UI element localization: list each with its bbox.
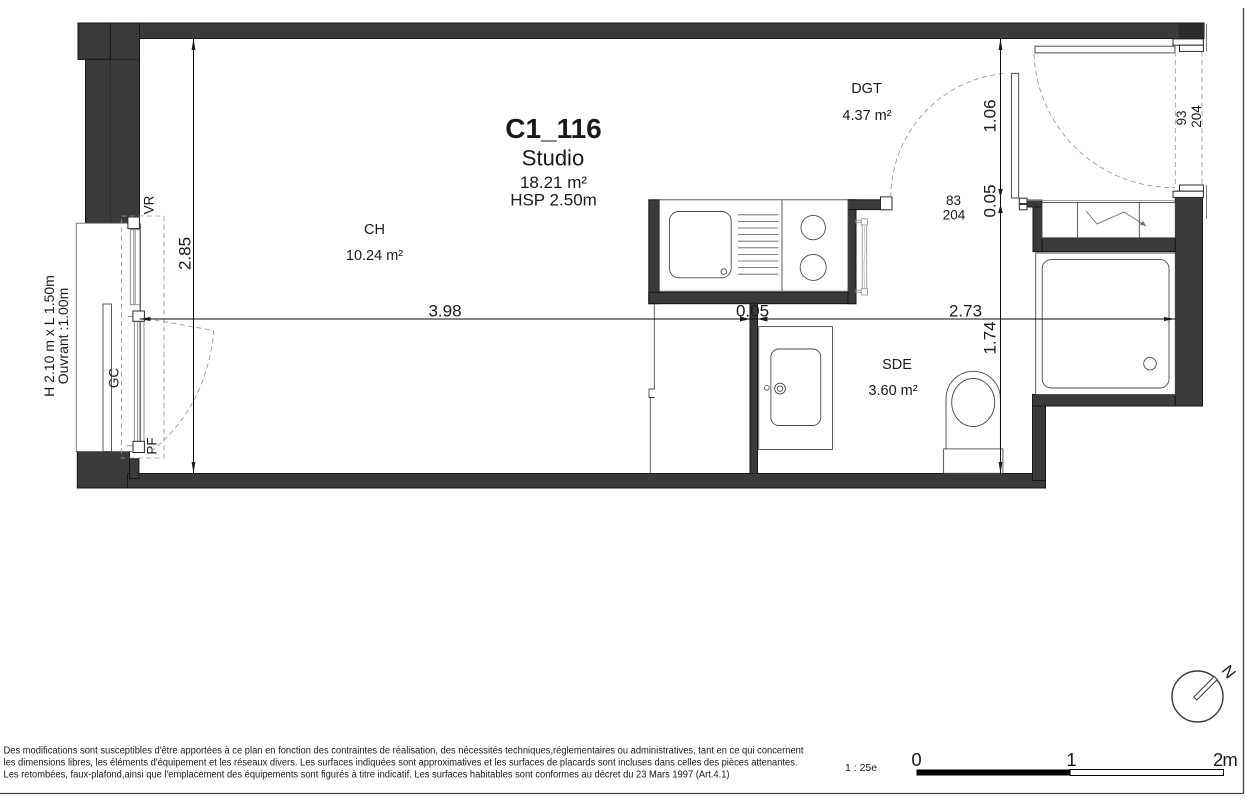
svg-text:Les retombées, faux-plafond,ai: Les retombées, faux-plafond,ainsi que l'… [4, 770, 730, 781]
svg-text:1.06: 1.06 [981, 99, 1000, 132]
svg-text:0.05: 0.05 [981, 184, 1000, 217]
svg-text:GC: GC [107, 368, 122, 389]
svg-text:18.21 m²: 18.21 m² [520, 173, 587, 192]
svg-text:10.24 m²: 10.24 m² [346, 248, 403, 264]
svg-text:Ouvrant :1.00m: Ouvrant :1.00m [55, 288, 71, 385]
svg-text:1 : 25e: 1 : 25e [845, 762, 877, 774]
svg-text:1: 1 [1066, 749, 1076, 770]
svg-text:N: N [1218, 662, 1239, 682]
svg-text:2.73: 2.73 [949, 302, 982, 321]
svg-text:3.60 m²: 3.60 m² [868, 383, 917, 399]
svg-text:2.85: 2.85 [176, 237, 195, 270]
svg-text:les dimensions libres, les élé: les dimensions libres, les éléments d'éq… [4, 758, 798, 769]
svg-text:CH: CH [364, 222, 385, 238]
svg-text:83: 83 [946, 193, 961, 208]
svg-text:DGT: DGT [851, 81, 882, 97]
svg-text:2m: 2m [1213, 749, 1237, 770]
svg-text:93: 93 [1174, 110, 1189, 125]
svg-text:204: 204 [943, 208, 966, 223]
svg-text:Des modifications sont suscept: Des modifications sont susceptibles d'êt… [4, 746, 804, 757]
svg-text:1.74: 1.74 [981, 321, 1000, 354]
svg-text:VR: VR [142, 195, 157, 214]
svg-text:204: 204 [1189, 105, 1204, 128]
svg-text:0.05: 0.05 [736, 302, 769, 321]
svg-text:PF: PF [145, 437, 160, 454]
svg-text:SDE: SDE [882, 357, 912, 373]
svg-text:Studio: Studio [522, 146, 584, 171]
svg-text:C1_116: C1_116 [505, 113, 602, 144]
svg-text:3.98: 3.98 [428, 302, 461, 321]
svg-text:HSP 2.50m: HSP 2.50m [510, 191, 597, 210]
svg-text:0: 0 [911, 749, 921, 770]
svg-text:4.37 m²: 4.37 m² [842, 108, 891, 124]
